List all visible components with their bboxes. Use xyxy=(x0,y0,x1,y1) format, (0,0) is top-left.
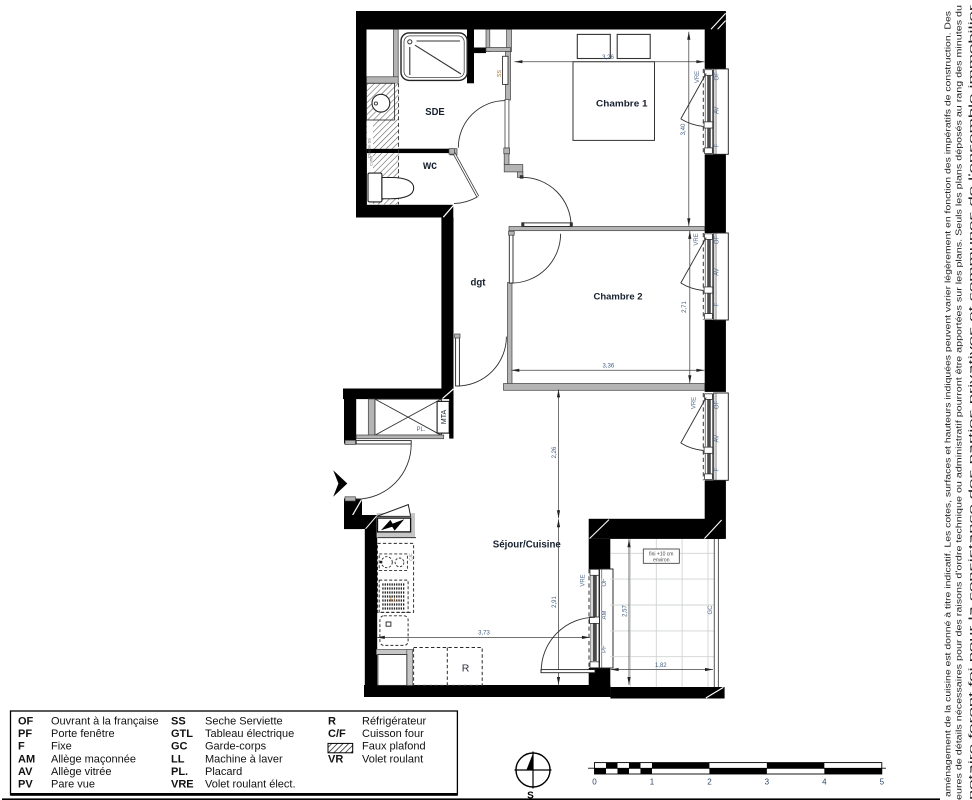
svg-text:Séjour/Cuisine: Séjour/Cuisine xyxy=(493,539,561,550)
svg-text:SDE: SDE xyxy=(425,106,445,118)
svg-text:LL: LL xyxy=(171,753,185,765)
svg-text:F: F xyxy=(18,741,25,753)
svg-text:LL: LL xyxy=(390,598,397,604)
svg-text:eures de détails nécessaires p: eures de détails nécessaires pour des ra… xyxy=(955,5,964,800)
svg-text:3,26: 3,26 xyxy=(602,55,614,61)
svg-text:AM: AM xyxy=(602,610,608,619)
svg-text:2: 2 xyxy=(707,778,712,787)
svg-text:GTL: GTL xyxy=(171,728,193,740)
svg-text:F: F xyxy=(715,467,721,471)
svg-text:AV: AV xyxy=(715,435,721,443)
svg-text:4: 4 xyxy=(822,778,827,787)
svg-text:Seche Serviette: Seche Serviette xyxy=(205,715,283,727)
svg-text:VR: VR xyxy=(328,753,343,765)
svg-text:VRE: VRE xyxy=(171,779,194,791)
svg-text:OF: OF xyxy=(715,72,721,81)
svg-text:3,73: 3,73 xyxy=(478,631,490,637)
svg-text:Fixe: Fixe xyxy=(51,741,72,753)
svg-text:Garde-corps: Garde-corps xyxy=(205,741,267,753)
svg-text:Volet roulant élect.: Volet roulant élect. xyxy=(205,779,296,791)
svg-text:1,82: 1,82 xyxy=(655,663,667,669)
svg-text:PL.: PL. xyxy=(171,766,188,778)
svg-text:Tableau électrique: Tableau électrique xyxy=(205,728,294,740)
svg-text:VRE: VRE xyxy=(694,233,700,245)
svg-text:Chambre 1: Chambre 1 xyxy=(596,99,648,110)
svg-text:Placard: Placard xyxy=(205,766,242,778)
svg-text:2,57: 2,57 xyxy=(623,605,629,617)
svg-text:Ouvrant à la française: Ouvrant à la française xyxy=(51,715,159,727)
svg-text:PL.: PL. xyxy=(416,427,425,433)
svg-text:OF: OF xyxy=(602,578,608,587)
svg-text:Cuisson four: Cuisson four xyxy=(362,728,424,740)
svg-text:AV: AV xyxy=(715,107,721,115)
svg-text:MTA: MTA xyxy=(441,410,448,425)
svg-text:F: F xyxy=(715,302,721,306)
svg-text:0: 0 xyxy=(592,778,597,787)
svg-text:AM: AM xyxy=(18,753,35,765)
svg-text:Machine à laver: Machine à laver xyxy=(205,753,283,765)
svg-text:PF: PF xyxy=(18,728,32,740)
svg-text:SS: SS xyxy=(497,70,503,77)
svg-text:GC: GC xyxy=(708,605,714,615)
svg-text:notaire feront foi pour la con: notaire feront foi pour la consistance d… xyxy=(968,4,972,800)
svg-text:Réfrigérateur: Réfrigérateur xyxy=(362,715,427,727)
svg-text:Porte fenêtre: Porte fenêtre xyxy=(51,728,115,740)
svg-text:C/F: C/F xyxy=(409,553,414,561)
svg-text:environ: environ xyxy=(653,558,670,564)
svg-text:VRE: VRE xyxy=(695,71,701,83)
svg-text:1: 1 xyxy=(650,778,655,787)
svg-text:C/F: C/F xyxy=(328,728,346,740)
svg-text:2,71: 2,71 xyxy=(682,301,688,313)
svg-text:OF: OF xyxy=(18,715,34,727)
svg-text:dgt: dgt xyxy=(471,276,486,288)
svg-text:aménagement de la cuisine est: aménagement de la cuisine est donné à ti… xyxy=(944,11,953,797)
svg-text:OF: OF xyxy=(715,401,721,410)
svg-text:3: 3 xyxy=(765,778,770,787)
svg-text:VRE: VRE xyxy=(581,574,587,586)
svg-text:3,40: 3,40 xyxy=(681,123,687,135)
svg-text:wc: wc xyxy=(422,160,437,172)
svg-text:Chambre 2: Chambre 2 xyxy=(594,292,643,303)
svg-text:PF: PF xyxy=(602,645,608,653)
svg-text:Pare vue: Pare vue xyxy=(51,779,95,791)
svg-text:Cloison SS: Cloison SS xyxy=(367,138,372,158)
svg-text:SS: SS xyxy=(171,715,186,727)
svg-text:F: F xyxy=(715,143,721,147)
svg-text:Allège vitrée: Allège vitrée xyxy=(51,766,112,778)
svg-text:Allège maçonnée: Allège maçonnée xyxy=(51,753,136,765)
svg-text:3,36: 3,36 xyxy=(603,364,615,370)
svg-text:PV: PV xyxy=(18,779,33,791)
svg-text:GC: GC xyxy=(171,741,188,753)
svg-text:AV: AV xyxy=(715,268,721,276)
svg-text:OF: OF xyxy=(715,236,721,245)
svg-text:Volet roulant: Volet roulant xyxy=(362,753,423,765)
svg-text:Coffre: Coffre xyxy=(370,156,374,166)
svg-text:AV: AV xyxy=(18,766,33,778)
svg-text:R: R xyxy=(328,715,336,727)
svg-text:R: R xyxy=(462,663,470,675)
svg-text:Faux plafond: Faux plafond xyxy=(362,741,426,753)
svg-text:2,91: 2,91 xyxy=(552,596,558,608)
svg-text:5: 5 xyxy=(880,778,885,787)
svg-text:2,26: 2,26 xyxy=(552,446,558,458)
svg-text:VRE: VRE xyxy=(692,397,698,409)
